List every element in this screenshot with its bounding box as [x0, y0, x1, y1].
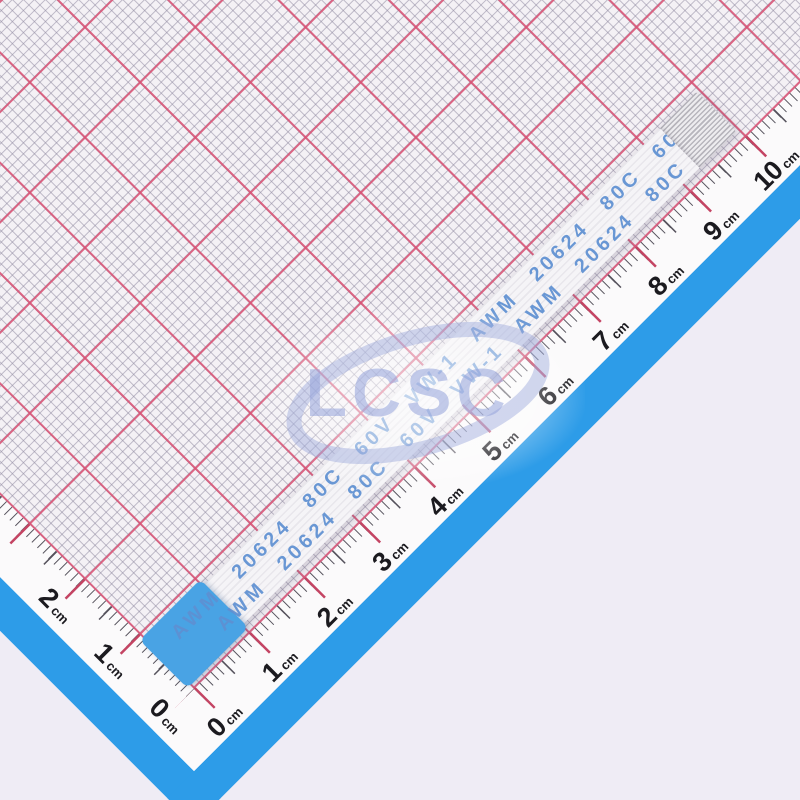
product-photo: 0cm1cm2cm3cm4cm5cm6cm7cm8cm9cm10cm 0cm1c…: [0, 0, 800, 800]
lcsc-watermark: LCSC: [158, 283, 678, 513]
watermark-text: LCSC: [305, 355, 510, 431]
